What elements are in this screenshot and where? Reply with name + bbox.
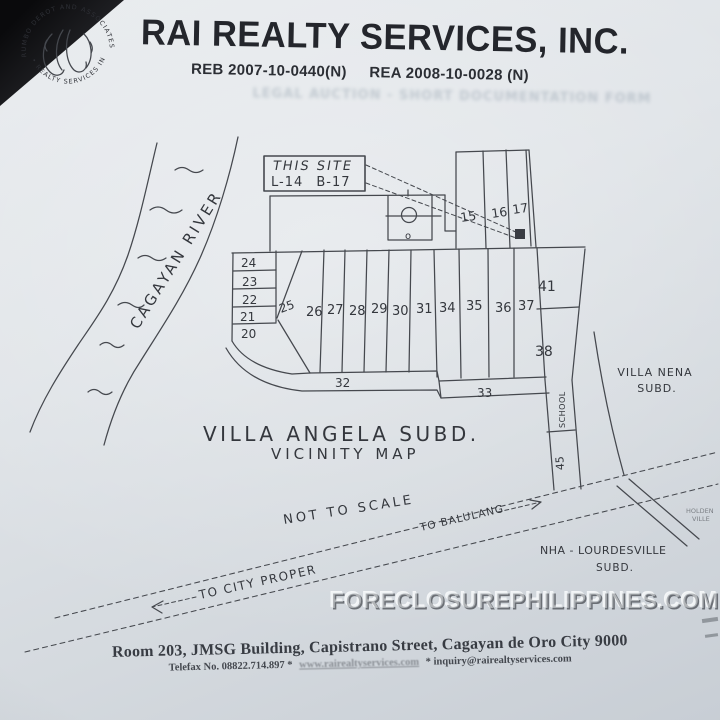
river-drawing xyxy=(30,137,238,445)
lot-label: 36 xyxy=(495,301,512,316)
lot-label: 20 xyxy=(241,327,256,341)
facility-mark: o xyxy=(405,231,411,242)
neighbor-villa-nena-line1: VILLA NENA xyxy=(617,366,692,379)
lot-label: 31 xyxy=(416,302,433,317)
scale-note: NOT TO SCALE xyxy=(282,492,415,527)
lot-label: 21 xyxy=(240,310,255,324)
road-label-balulang: TO BALULANG xyxy=(418,503,505,534)
map-title: VILLA ANGELA SUBD. xyxy=(203,422,480,446)
neighbor-nha-line1: NHA - LOURDESVILLE xyxy=(540,544,666,557)
lot-label: 41 xyxy=(538,279,556,295)
lot-label: 45 xyxy=(553,456,567,471)
scanned-document-photo: RAI REALTY SERVICES, INC. REB 2007-10-04… xyxy=(0,0,720,720)
lot-label: 33 xyxy=(477,386,492,400)
lot-label: 29 xyxy=(371,302,388,317)
lot-label: 24 xyxy=(241,256,256,270)
lot-label: 22 xyxy=(242,293,257,307)
neighbor-nha-line2: SUBD. xyxy=(596,562,634,574)
lot-label: 17 xyxy=(511,200,529,217)
edge-faint-text-line1: HOLDEN xyxy=(686,507,714,515)
lot-label: 25 xyxy=(277,297,296,315)
site-callout-line1: THIS SITE xyxy=(270,159,354,174)
lot-label: 26 xyxy=(306,305,323,320)
edge-faint-text-line2: VILLE xyxy=(692,515,710,523)
school-label: SCHOOL xyxy=(558,391,567,428)
lot-label: 30 xyxy=(392,304,409,319)
lot-label: 38 xyxy=(535,344,553,360)
lot-label: 37 xyxy=(518,299,535,314)
lot-label: 28 xyxy=(349,304,366,319)
map-subtitle: VICINITY MAP xyxy=(271,445,420,463)
lot-label: 35 xyxy=(466,299,483,314)
seal-arc-top-text: RUMBO DEROT AND ASSOCIATES xyxy=(21,4,115,58)
facility-drawing xyxy=(270,190,456,251)
lot-label: 16 xyxy=(490,204,508,221)
lot-label: 27 xyxy=(327,303,344,318)
company-seal-logo: RUMBO DEROT AND ASSOCIATES • REALTY SERV… xyxy=(0,0,115,86)
lot-label: 32 xyxy=(335,376,350,390)
site-callout-line2: L-14 B-17 xyxy=(271,175,351,190)
watermark: FORECLOSUREPHILIPPINES.COM xyxy=(330,587,716,614)
lot-label: 34 xyxy=(439,301,456,316)
lot-label: 23 xyxy=(242,275,257,289)
neighbor-villa-nena-line2: SUBD. xyxy=(637,382,677,395)
svg-text:RUMBO DEROT AND ASSOCIATES: RUMBO DEROT AND ASSOCIATES xyxy=(21,4,115,58)
lot-label: 15 xyxy=(459,208,477,225)
